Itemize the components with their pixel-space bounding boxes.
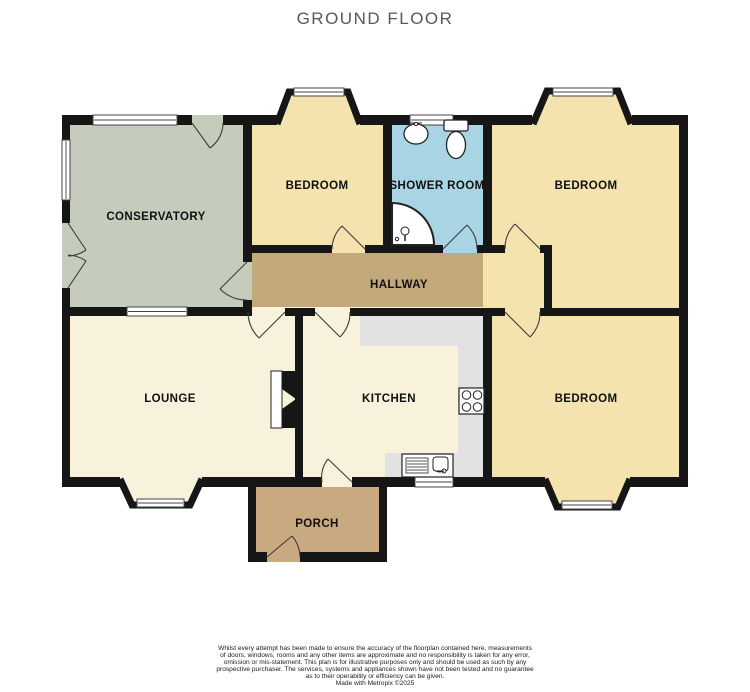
sink-bowl-icon (433, 457, 448, 471)
room-label-bedroom-bottom-right: BEDROOM (555, 393, 618, 405)
toilet-cistern-icon (444, 120, 468, 131)
hob-burner-icon (462, 391, 471, 400)
floorplan-canvas: CONSERVATORY BEDROOM SHOWER ROOM BEDROOM… (0, 0, 750, 692)
hob-burner-icon (473, 403, 482, 412)
room-label-bedroom-top-right: BEDROOM (555, 180, 618, 192)
room-label-porch: PORCH (295, 518, 339, 530)
room-label-lounge: LOUNGE (144, 393, 196, 405)
room-label-hallway: HALLWAY (370, 279, 428, 291)
room-label-conservatory: CONSERVATORY (106, 211, 205, 223)
basin-tap-icon (414, 122, 417, 125)
shower-drain-icon (395, 237, 398, 240)
disclaimer-line: of doors, windows, rooms and any other i… (0, 652, 750, 659)
disclaimer-line: prospective purchaser. The services, sys… (0, 666, 750, 673)
room-bedroom-top-right (483, 115, 688, 316)
room-label-bedroom-top-middle: BEDROOM (286, 180, 349, 192)
shower-control-icon (401, 227, 409, 235)
disclaimer: Whilst every attempt has been made to en… (0, 645, 750, 687)
disclaimer-line: omission or mis-statement. This plan is … (0, 659, 750, 666)
room-label-kitchen: KITCHEN (362, 393, 416, 405)
disclaimer-line: as to their operability or efficiency ca… (0, 673, 750, 680)
disclaimer-line: Whilst every attempt has been made to en… (0, 645, 750, 652)
sink-drainer-icon (406, 458, 428, 473)
basin-icon (404, 124, 428, 144)
room-label-shower-room: SHOWER ROOM (389, 180, 484, 192)
toilet-bowl-icon (447, 132, 466, 159)
fireplace-hearth-icon (271, 371, 282, 428)
hob-burner-icon (473, 391, 482, 400)
hob-burner-icon (462, 403, 471, 412)
disclaimer-line: Made with Metropix ©2025 (0, 680, 750, 687)
